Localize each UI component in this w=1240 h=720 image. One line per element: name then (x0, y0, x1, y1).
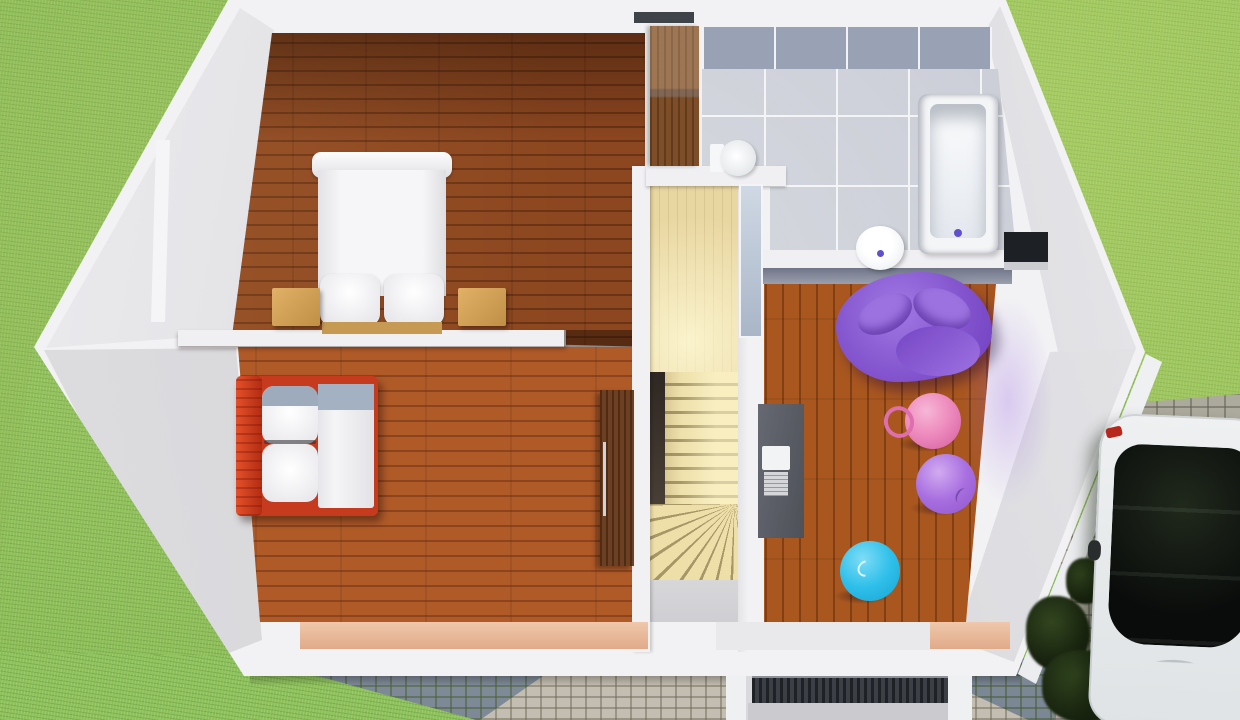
porch-wall-left (726, 676, 746, 720)
laptop-screen (762, 446, 790, 470)
nightstand-right (458, 288, 506, 326)
entrance-grate (752, 676, 948, 705)
bed-pillow-right (384, 274, 444, 326)
bathtub-drain (954, 229, 962, 237)
bed-duvet (318, 384, 374, 508)
car-glass-roof (1107, 443, 1240, 649)
entrance-step (748, 703, 952, 720)
bed-headboard-red (236, 376, 262, 516)
car-hood (1106, 657, 1240, 720)
stairwell-left-wall (632, 166, 650, 652)
basin-tap (877, 250, 884, 257)
laptop (762, 446, 790, 498)
car-taillight-left (1105, 425, 1123, 438)
lower-floor-cutaway-left (300, 622, 648, 649)
wall-niche-ledge (1004, 262, 1048, 270)
bed-headboard (322, 322, 442, 334)
bean-bag (836, 272, 992, 382)
tall-cabinet (600, 390, 634, 566)
pillow-crease (264, 440, 316, 444)
floor-plan-render (0, 0, 1240, 720)
wardrobe (650, 26, 699, 166)
single-bed (236, 376, 378, 516)
double-bed (310, 152, 454, 334)
stair-void (650, 372, 665, 512)
nightstand-left (272, 288, 320, 326)
lower-floor-cutaway-right (928, 622, 1010, 649)
wall-niche (1004, 232, 1048, 264)
bathtub-basin (930, 104, 986, 238)
bean-bag-seat (896, 326, 980, 376)
stair-landing (650, 580, 738, 622)
porch-roof-notch (716, 622, 930, 650)
bed-pillow-left (320, 274, 380, 326)
bed-pillow-lower (262, 444, 318, 502)
laptop-keyboard (764, 472, 788, 496)
top-wall-window-slot (634, 12, 694, 23)
stair-hall-floor (650, 170, 738, 372)
toilet-bowl (720, 140, 756, 176)
cabinet-handle (603, 442, 606, 516)
bed-pillow-upper (262, 386, 318, 444)
porch-wall-right (948, 676, 972, 720)
bathroom-tile-band (702, 27, 992, 69)
glass-partition (739, 184, 763, 338)
bathtub (918, 94, 998, 254)
car-side-mirror (1087, 540, 1101, 561)
staircase-winder-steps (650, 504, 738, 580)
car (1087, 412, 1240, 720)
toilet (710, 140, 756, 176)
pedestal-basin (856, 226, 904, 270)
lilac-gym-ball (916, 454, 976, 514)
